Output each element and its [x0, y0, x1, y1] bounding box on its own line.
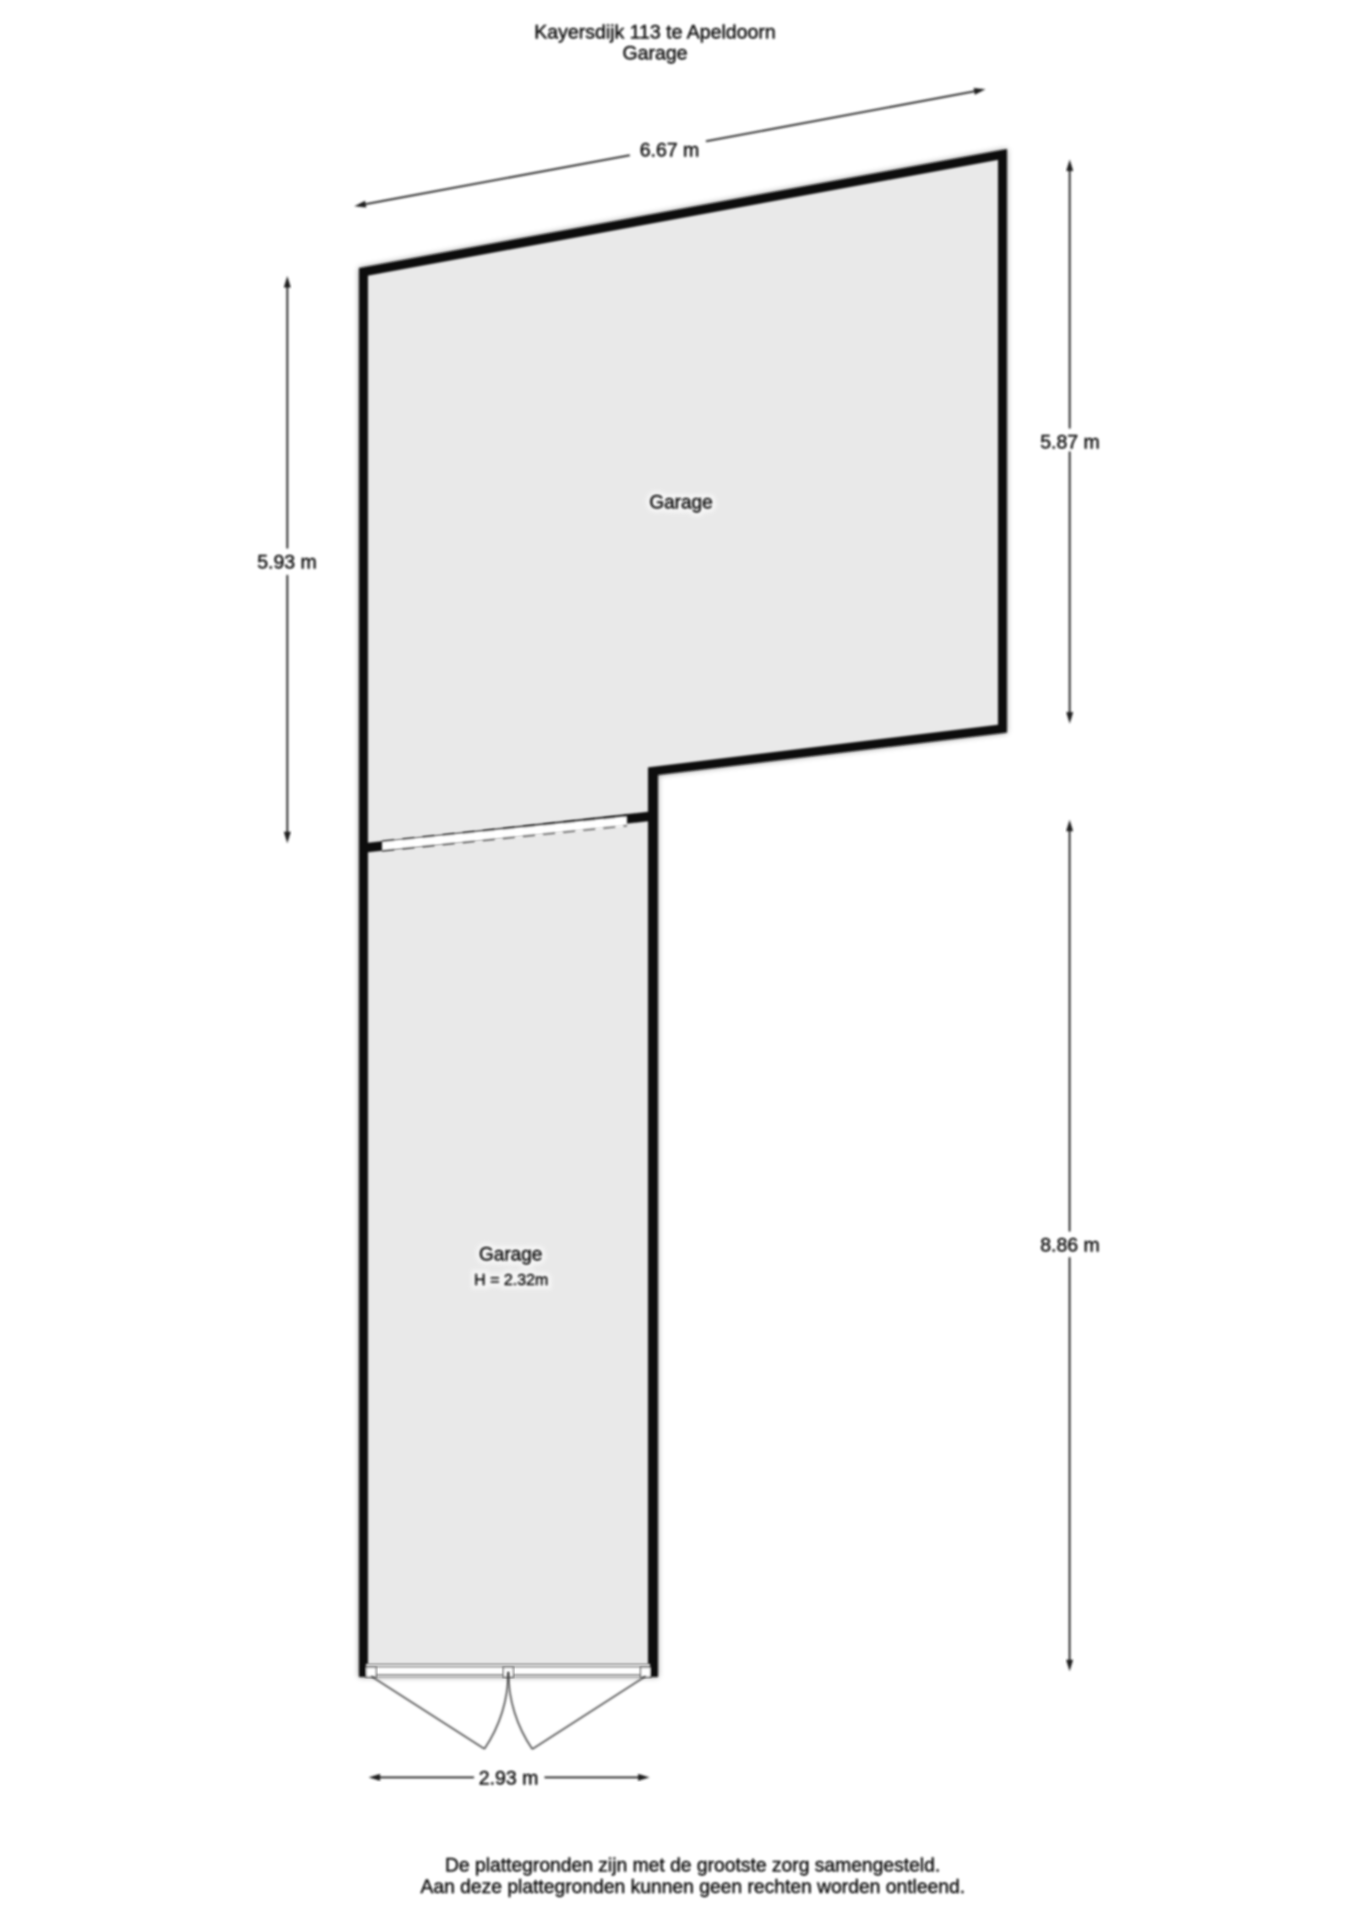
svg-text:5.93 m: 5.93 m — [257, 552, 317, 574]
svg-text:Garage: Garage — [622, 43, 687, 65]
svg-text:H = 2.32m: H = 2.32m — [474, 1272, 548, 1289]
svg-text:Garage: Garage — [479, 1245, 542, 1266]
svg-text:Garage: Garage — [649, 493, 712, 514]
svg-text:Kayersdijk 113 te Apeldoorn: Kayersdijk 113 te Apeldoorn — [534, 22, 775, 44]
svg-text:Aan deze plattegronden kunnen: Aan deze plattegronden kunnen geen recht… — [421, 1877, 966, 1898]
svg-text:De plattegronden zijn met de g: De plattegronden zijn met de grootste zo… — [445, 1856, 940, 1877]
svg-text:6.67 m: 6.67 m — [640, 139, 700, 161]
svg-text:5.87 m: 5.87 m — [1040, 431, 1100, 453]
svg-text:2.93 m: 2.93 m — [479, 1767, 539, 1789]
svg-text:8.86 m: 8.86 m — [1040, 1234, 1100, 1256]
